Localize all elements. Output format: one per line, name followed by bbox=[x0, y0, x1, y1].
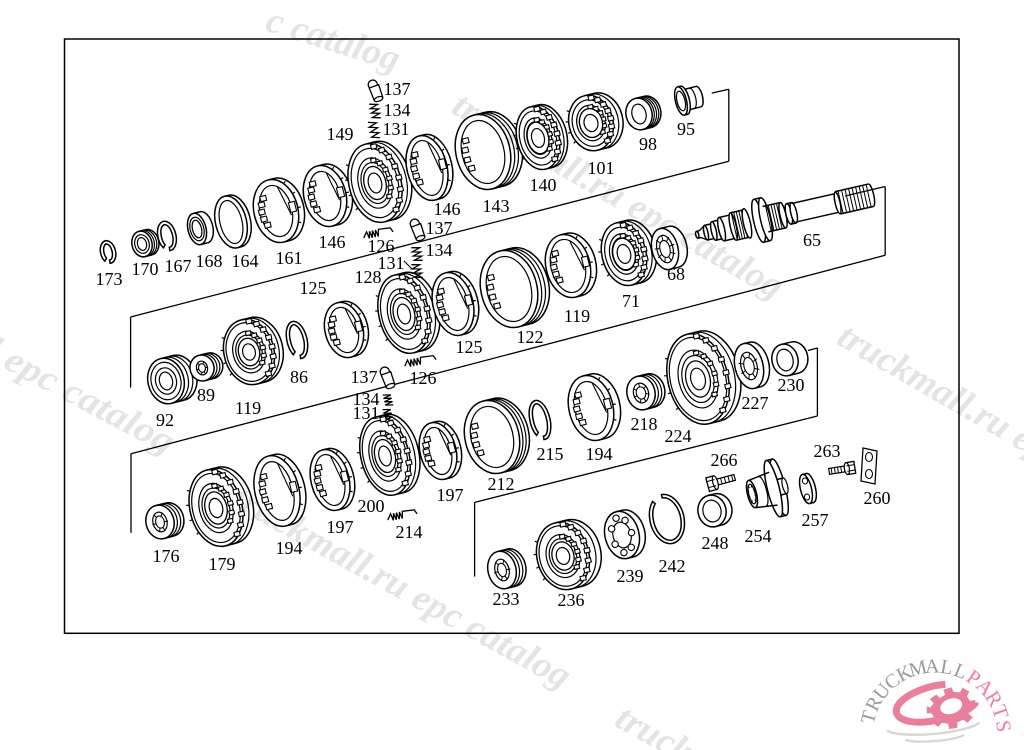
svg-text:134: 134 bbox=[384, 100, 411, 120]
svg-text:86: 86 bbox=[290, 367, 308, 387]
svg-text:A: A bbox=[925, 655, 941, 678]
svg-text:119: 119 bbox=[564, 306, 590, 326]
svg-text:126: 126 bbox=[410, 368, 437, 388]
svg-text:149: 149 bbox=[327, 124, 354, 144]
svg-text:218: 218 bbox=[631, 414, 658, 434]
svg-text:128: 128 bbox=[355, 267, 382, 287]
svg-text:137: 137 bbox=[384, 79, 411, 99]
svg-text:101: 101 bbox=[588, 158, 615, 178]
svg-text:137: 137 bbox=[426, 218, 453, 238]
svg-text:68: 68 bbox=[667, 264, 685, 284]
svg-text:254: 254 bbox=[745, 526, 772, 546]
svg-text:164: 164 bbox=[232, 251, 259, 271]
svg-text:266: 266 bbox=[711, 450, 738, 470]
svg-text:230: 230 bbox=[778, 375, 805, 395]
svg-text:263: 263 bbox=[814, 441, 841, 461]
svg-text:197: 197 bbox=[327, 517, 354, 537]
svg-text:260: 260 bbox=[864, 488, 891, 508]
svg-text:176: 176 bbox=[153, 546, 180, 566]
svg-text:119: 119 bbox=[235, 398, 261, 418]
svg-text:168: 168 bbox=[196, 251, 223, 271]
svg-text:233: 233 bbox=[493, 589, 520, 609]
svg-text:212: 212 bbox=[488, 474, 515, 494]
svg-text:197: 197 bbox=[437, 485, 464, 505]
svg-text:224: 224 bbox=[665, 426, 692, 446]
svg-text:146: 146 bbox=[434, 199, 461, 219]
svg-text:194: 194 bbox=[586, 444, 613, 464]
svg-text:257: 257 bbox=[802, 510, 829, 530]
svg-text:92: 92 bbox=[156, 410, 174, 430]
svg-text:146: 146 bbox=[319, 232, 346, 252]
svg-text:200: 200 bbox=[358, 496, 385, 516]
svg-text:248: 248 bbox=[702, 533, 729, 553]
svg-text:131: 131 bbox=[353, 403, 380, 423]
svg-text:71: 71 bbox=[622, 291, 640, 311]
svg-text:179: 179 bbox=[209, 554, 236, 574]
svg-text:89: 89 bbox=[197, 385, 215, 405]
svg-text:227: 227 bbox=[742, 393, 769, 413]
svg-text:95: 95 bbox=[677, 119, 695, 139]
svg-text:214: 214 bbox=[396, 522, 423, 542]
svg-text:131: 131 bbox=[383, 119, 410, 139]
svg-text:161: 161 bbox=[276, 248, 303, 268]
svg-text:167: 167 bbox=[165, 256, 192, 276]
svg-text:143: 143 bbox=[483, 196, 510, 216]
svg-text:134: 134 bbox=[426, 240, 453, 260]
svg-text:125: 125 bbox=[456, 337, 483, 357]
svg-text:236: 236 bbox=[558, 590, 585, 610]
svg-text:137: 137 bbox=[351, 367, 378, 387]
svg-text:170: 170 bbox=[132, 259, 159, 279]
svg-text:140: 140 bbox=[530, 175, 557, 195]
svg-text:215: 215 bbox=[537, 444, 564, 464]
svg-text:173: 173 bbox=[96, 269, 123, 289]
svg-text:65: 65 bbox=[803, 230, 821, 250]
svg-text:194: 194 bbox=[276, 538, 303, 558]
svg-text:125: 125 bbox=[300, 278, 327, 298]
svg-text:122: 122 bbox=[517, 327, 544, 347]
svg-text:239: 239 bbox=[617, 566, 644, 586]
svg-text:242: 242 bbox=[659, 556, 686, 576]
svg-text:131: 131 bbox=[378, 253, 405, 273]
svg-text:98: 98 bbox=[639, 134, 657, 154]
